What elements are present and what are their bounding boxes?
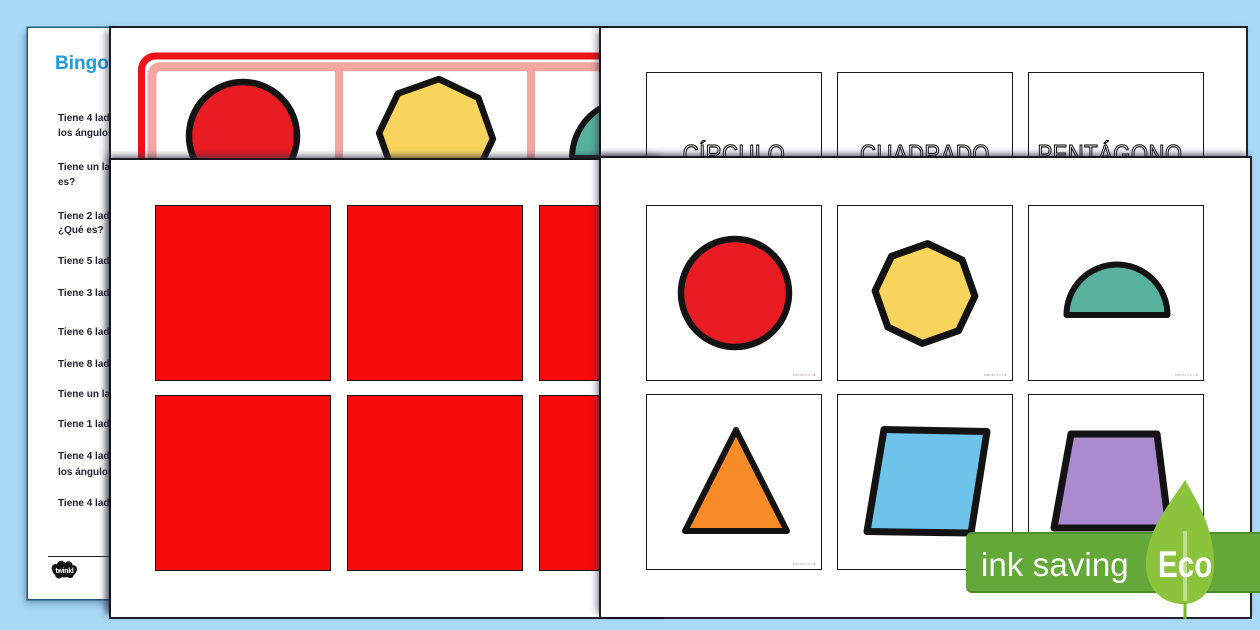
svg-text:twinkl: twinkl [56, 568, 74, 575]
